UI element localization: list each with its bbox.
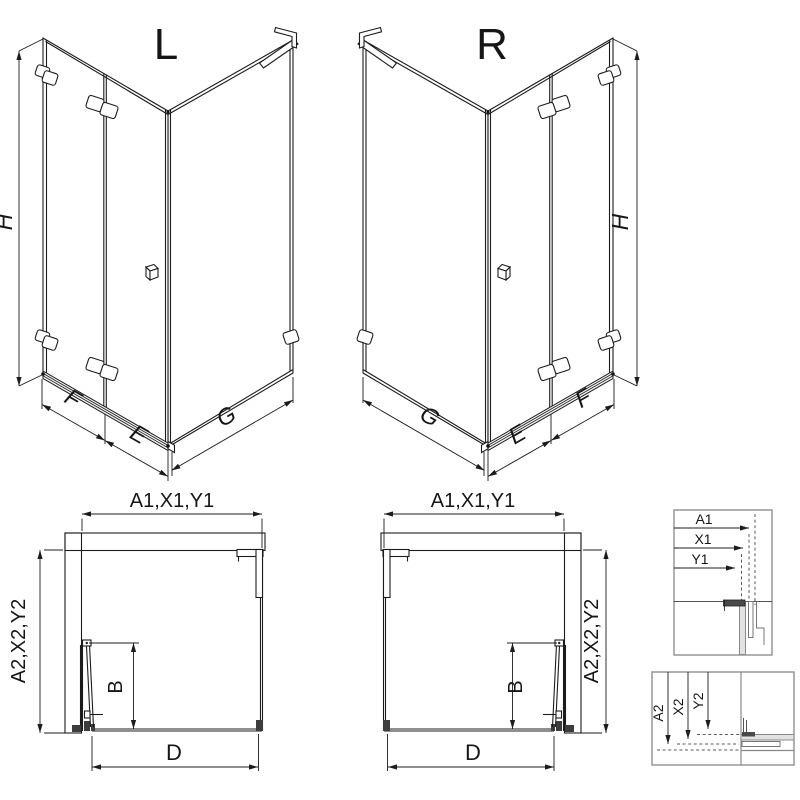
plan-label-top-left: A1,X1,Y1 — [130, 490, 215, 512]
shower-enclosure-diagram: L H F E G R H F E G A1,X1,Y1 A2,X2,Y2 B … — [0, 0, 800, 800]
iso-right-art — [356, 28, 637, 482]
plan-label-opening-right: D — [465, 740, 481, 765]
plan-view-right: A1,X1,Y1 A2,X2,Y2 B D — [381, 490, 606, 771]
variant-label-right: R — [476, 20, 508, 69]
plan-view-left: A1,X1,Y1 A2,X2,Y2 B D — [8, 490, 265, 771]
detail-label-X1: X1 — [694, 531, 711, 547]
detail-label-Y1: Y1 — [691, 551, 708, 567]
plan-label-opening-left: D — [166, 740, 182, 765]
technical-drawing-canvas: L H F E G R H F E G A1,X1,Y1 A2,X2,Y2 B … — [0, 0, 800, 800]
plan-label-door-right: B — [505, 680, 527, 693]
plan-label-side-left: A2,X2,Y2 — [8, 599, 30, 684]
dim-label-H-left: H — [0, 213, 17, 230]
plan-left-side-wall — [65, 533, 82, 733]
detail-label-A2: A2 — [650, 704, 666, 721]
plan-right-side-wall — [565, 533, 582, 733]
plan-right-top-wall — [381, 533, 581, 551]
detail-box-bottom: A2 X2 Y2 — [650, 672, 794, 765]
plan-label-door-left: B — [105, 680, 127, 693]
plan-label-top-right: A1,X1,Y1 — [431, 490, 516, 512]
detail-label-Y2: Y2 — [690, 692, 706, 709]
iso-view-left: L H F E G — [0, 20, 300, 481]
iso-left-art — [19, 28, 300, 482]
detail-box-top-frame — [674, 510, 772, 655]
detail-box-top: A1 X1 Y1 — [674, 510, 772, 655]
detail-label-A1: A1 — [695, 511, 712, 527]
plan-label-side-right: A2,X2,Y2 — [581, 599, 603, 684]
plan-left-top-wall — [65, 533, 265, 551]
dim-label-H-right: H — [607, 213, 633, 230]
variant-label-left: L — [154, 20, 178, 69]
iso-view-right: R H F E G — [356, 20, 637, 481]
detail-label-X2: X2 — [670, 698, 686, 715]
